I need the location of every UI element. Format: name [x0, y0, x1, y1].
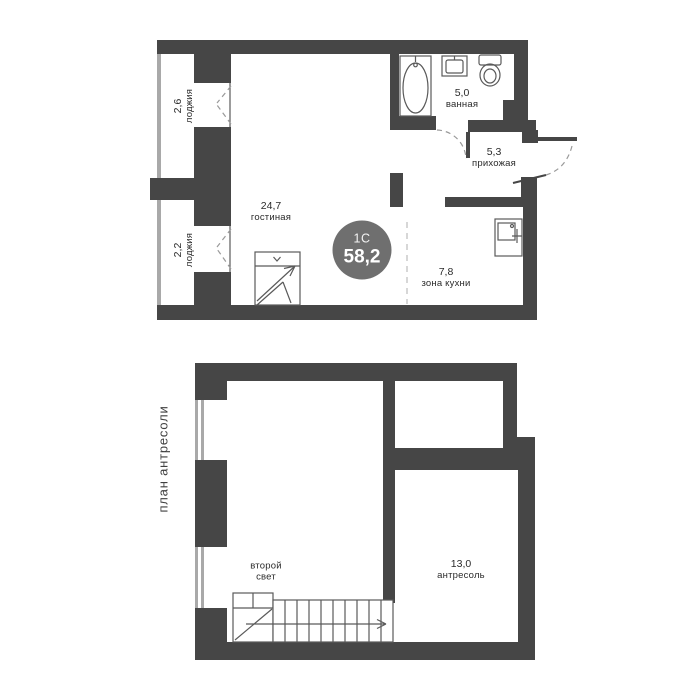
wall-segment	[390, 116, 436, 130]
wall-segment	[195, 642, 535, 660]
bathtub-basin	[403, 63, 428, 113]
room-area: 24,7	[251, 201, 291, 213]
toilet-icon	[479, 55, 501, 86]
window-swing-dashes	[217, 86, 231, 124]
room-area: 2,2	[173, 233, 185, 267]
room-label-hallway: 5,3 прихожая	[472, 147, 516, 169]
bathtub-icon	[400, 56, 431, 116]
window-opening	[195, 400, 227, 460]
balcony-window-top	[217, 83, 231, 127]
kitchen-sink-basin	[498, 223, 515, 240]
wall-segment	[383, 363, 395, 603]
wall-segment	[522, 130, 538, 143]
room-area: 13,0	[437, 559, 485, 571]
room-name: гостиная	[251, 213, 291, 224]
wall-segment	[194, 272, 231, 305]
apartment-total-area: 58,2	[344, 247, 381, 269]
floorplan-svg	[0, 0, 700, 700]
kitchen-sink-faucet	[512, 229, 522, 243]
room-label-kitchen-zone: 7,8 зона кухни	[421, 267, 470, 289]
room-name: прихожая	[472, 159, 516, 170]
kitchen-sink-drain	[511, 225, 514, 228]
room-label-mezzanine: 13,0 антресоль	[437, 559, 485, 581]
wall-segment	[194, 54, 231, 83]
floorplan-canvas: 2,6 лоджия 2,2 лоджия 24,7 гостиная 7,8 …	[0, 0, 700, 700]
wall-segment	[157, 40, 528, 54]
room-area: 7,8	[421, 267, 470, 279]
toilet-bowl-inner	[484, 69, 496, 83]
window-frame-line	[201, 547, 204, 608]
room-label-loggia-top: 2,6 лоджия	[173, 89, 195, 123]
room-area: 2,6	[173, 89, 185, 123]
room-name: свет	[250, 572, 281, 583]
balcony-window-bottom	[217, 226, 231, 272]
mezzanine-plan-title: план антресоли	[156, 405, 171, 512]
apartment-badge: 1С 58,2	[333, 221, 392, 280]
window-swing-dashes	[217, 229, 231, 269]
room-name: антресоль	[437, 571, 485, 582]
window-frame-line	[195, 400, 198, 460]
entry-door-swing-arc	[546, 146, 572, 175]
wall-segment	[530, 137, 577, 141]
wall-segment	[503, 363, 517, 443]
mezzanine-window-bottom	[195, 547, 227, 608]
window-frame-line	[201, 400, 204, 460]
wall-segment	[195, 363, 517, 381]
kitchen-sink-outline	[495, 219, 522, 256]
room-label-bathroom: 5,0 ванная	[446, 88, 478, 110]
room-label-second-light: второй свет	[250, 561, 281, 582]
sink-basin	[446, 60, 463, 73]
room-name: лоджия	[185, 89, 196, 123]
window-opening	[195, 547, 227, 608]
bathroom-door-swing-arc	[437, 130, 466, 159]
wall-segment	[390, 173, 403, 207]
window-frame-line	[195, 547, 198, 608]
room-name: зона кухни	[421, 279, 470, 290]
room-area: 5,3	[472, 147, 516, 159]
wall-segment	[466, 132, 470, 158]
bathtub-frame	[400, 56, 431, 116]
room-name: ванная	[446, 100, 478, 111]
kitchen-sink-icon	[495, 219, 522, 256]
wall-segment	[194, 127, 231, 226]
room-area: 5,0	[446, 88, 478, 100]
wall-segment	[523, 197, 537, 320]
mezzanine-window-top	[195, 400, 227, 460]
stairs-up-icon	[255, 252, 300, 305]
wall-segment	[518, 437, 535, 660]
wall-segment	[395, 448, 517, 460]
room-label-living-room: 24,7 гостиная	[251, 201, 291, 223]
wall-segment	[195, 460, 227, 547]
wall-segment	[383, 460, 535, 470]
room-name: лоджия	[185, 233, 196, 267]
bathtub-drain	[414, 63, 418, 67]
stairs-run-icon	[233, 593, 393, 642]
room-label-loggia-bottom: 2,2 лоджия	[173, 233, 195, 267]
apartment-type: 1С	[354, 232, 371, 246]
wall-segment	[150, 178, 194, 200]
wall-segment	[157, 305, 537, 320]
wall-segment	[195, 363, 227, 400]
sink-icon	[442, 56, 467, 76]
